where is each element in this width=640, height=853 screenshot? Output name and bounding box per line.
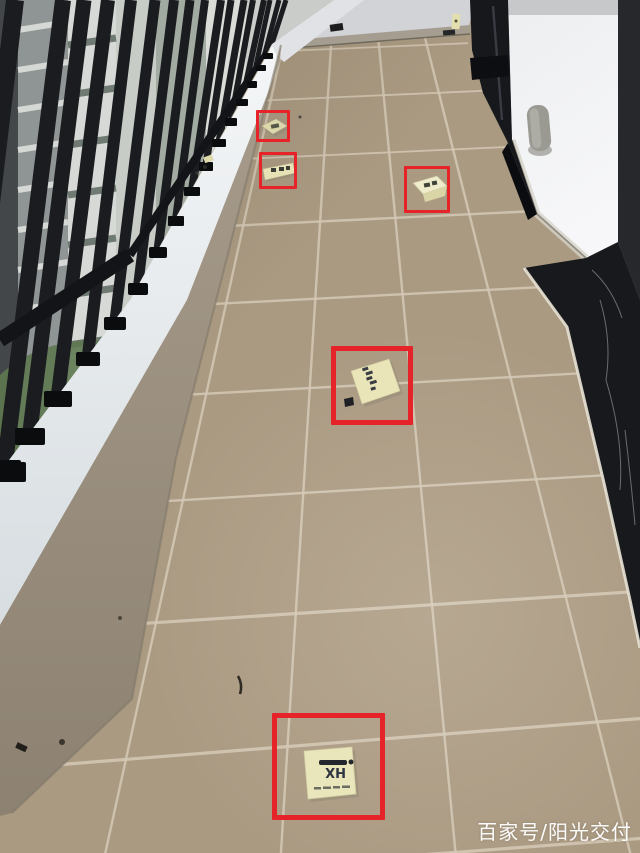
balcony-photo: HX 百家号/阳光交付 — [0, 0, 640, 853]
watermark: 百家号/阳光交付 — [477, 816, 632, 845]
sticker-5: HX — [304, 747, 359, 802]
door-stopper — [526, 104, 552, 156]
balcony-scene: HX — [0, 0, 640, 853]
sticker-5-logo-text: HX — [325, 764, 346, 779]
ceiling-band — [508, 0, 618, 15]
